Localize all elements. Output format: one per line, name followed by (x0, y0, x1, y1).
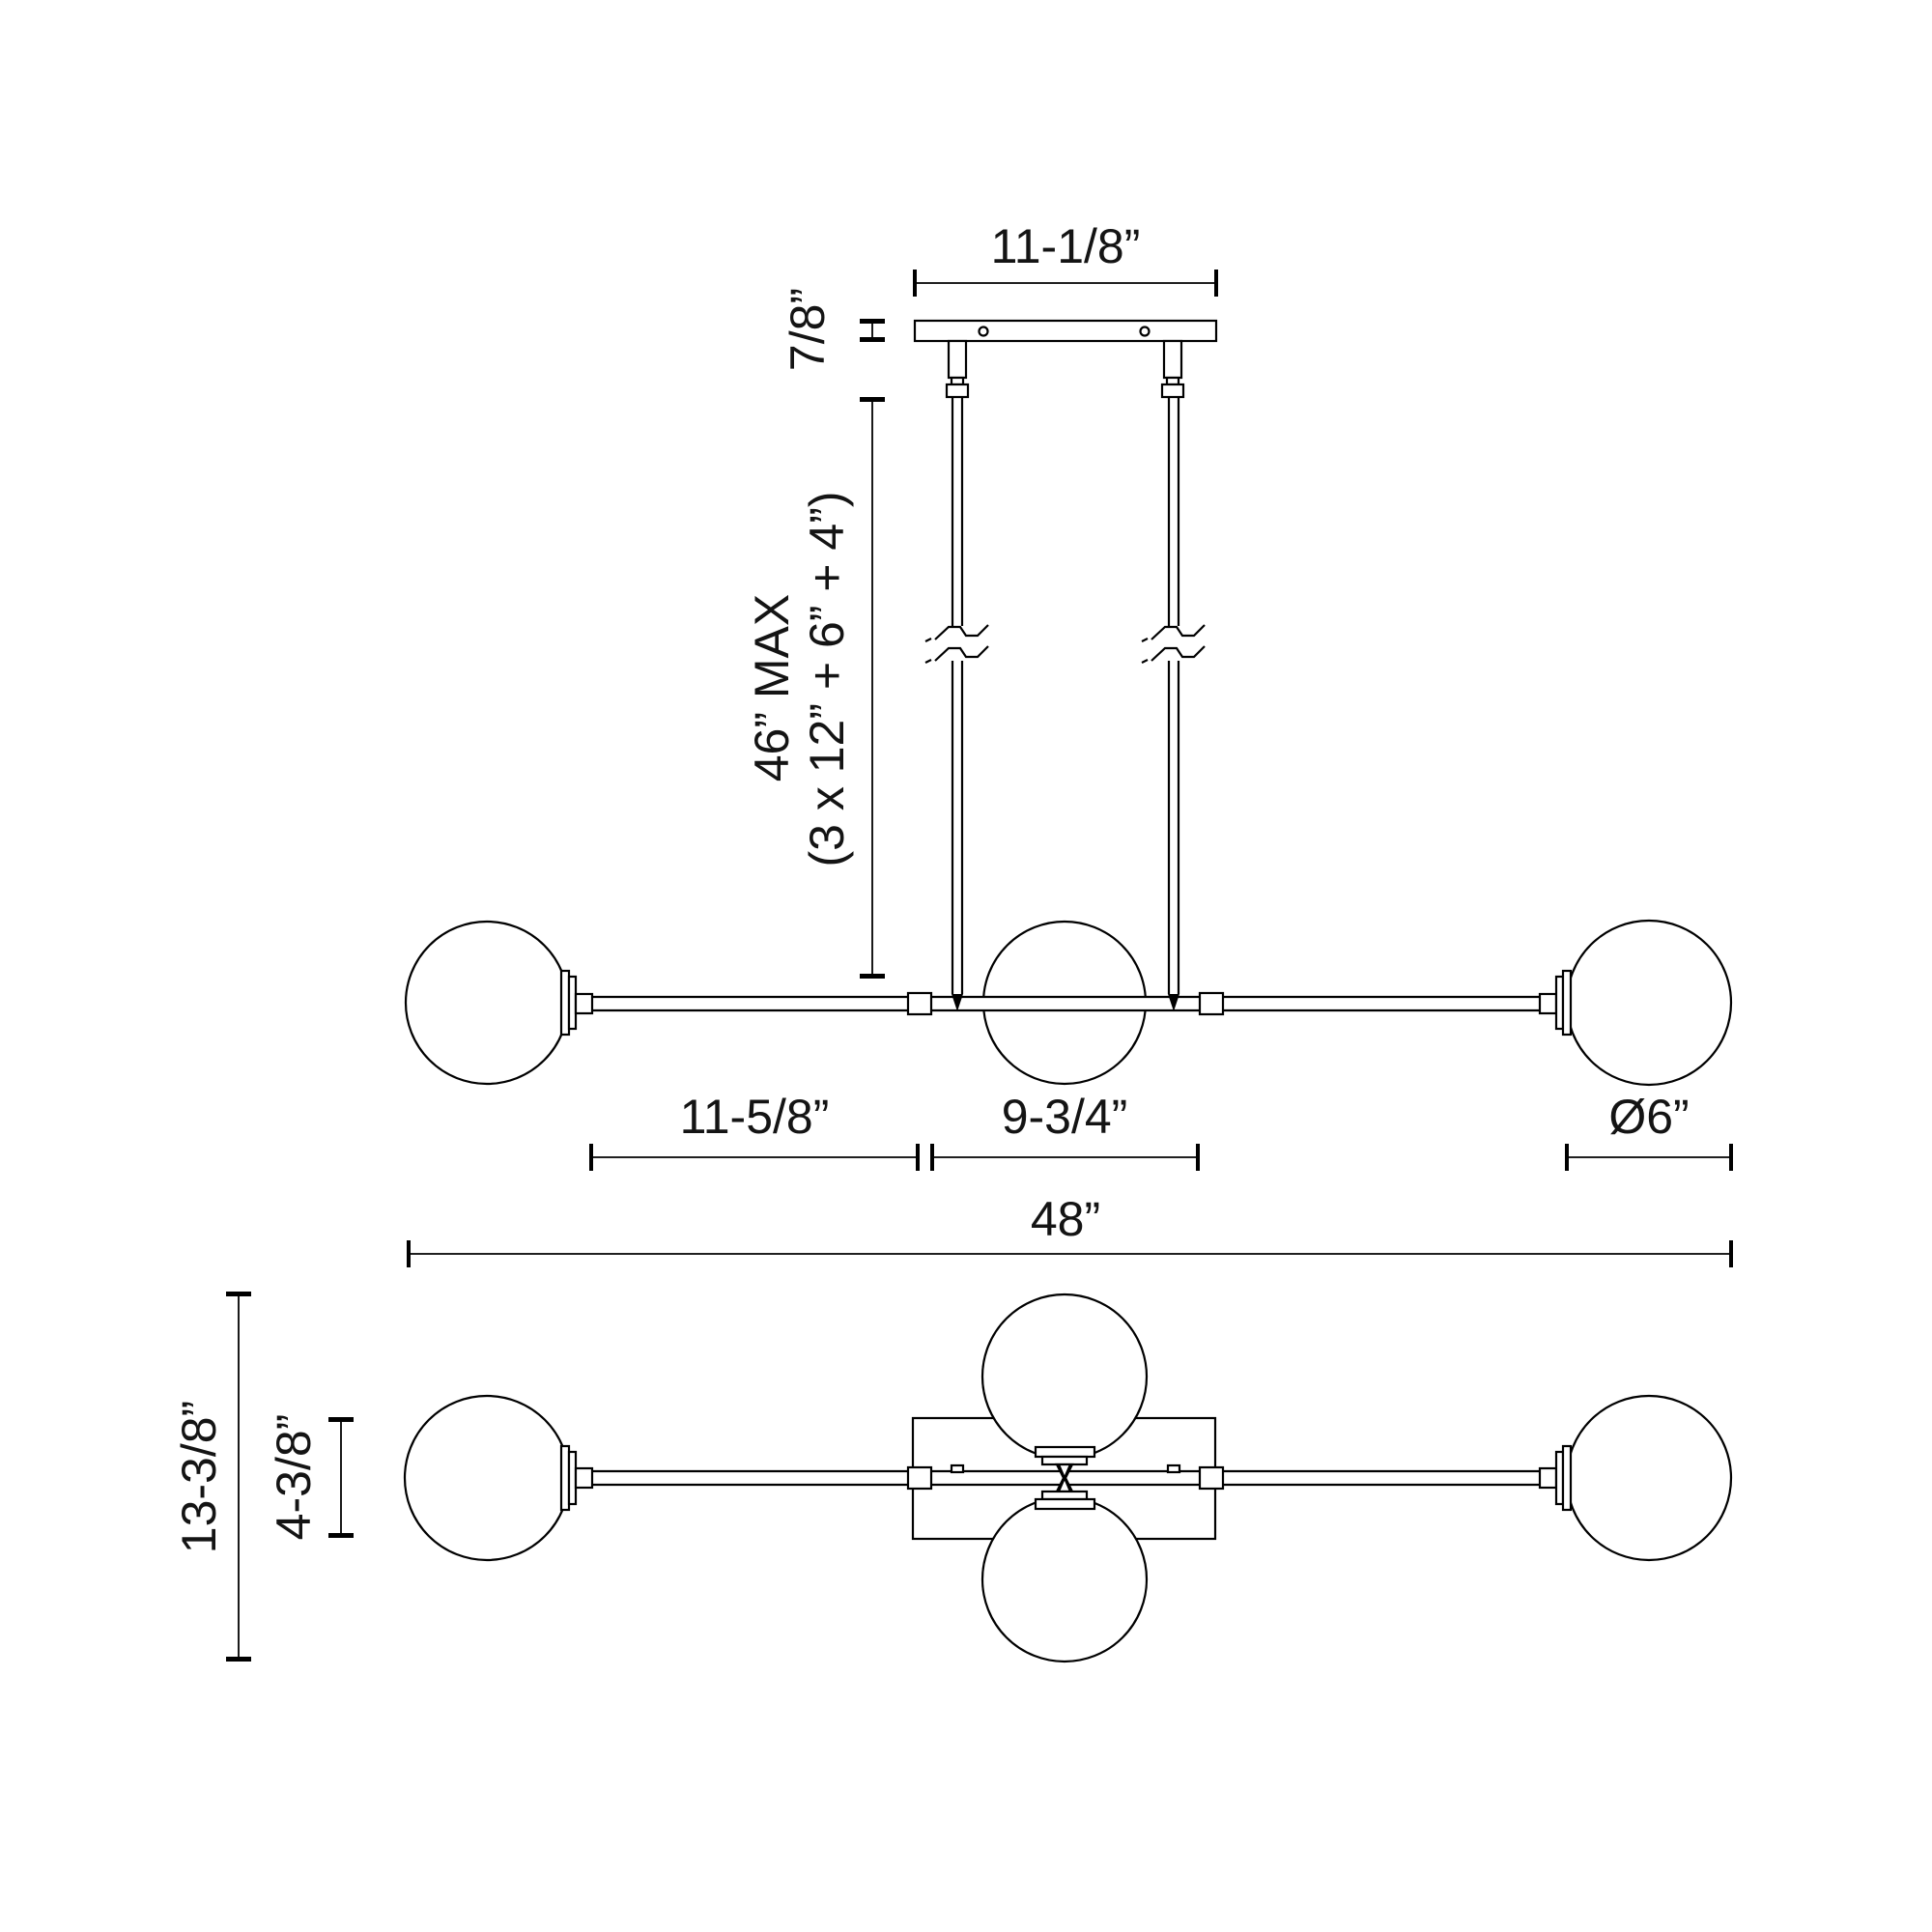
left-arm-length-label: 11-5/8” (680, 1090, 830, 1144)
center-section-label: 9-3/4” (1002, 1090, 1128, 1144)
canopy-height-label: 7/8” (781, 288, 835, 371)
right-bar-coupler (1200, 993, 1223, 1014)
right-arm-coupler-plan (1200, 1467, 1223, 1489)
dim-tick (328, 1417, 354, 1422)
back-globe-plan (982, 1497, 1147, 1662)
dim-tick (860, 974, 885, 979)
dim-tick (589, 1144, 593, 1171)
right-globe-side (1567, 921, 1731, 1085)
suspension-breakdown-label: (3 x 12” + 6” + 4”) (800, 491, 854, 867)
dim-overall-depth: 13-3/8” (172, 1292, 251, 1662)
dim-tick (226, 1657, 251, 1662)
dim-canopy-height: 7/8” (781, 288, 885, 371)
right-stem-nut (1162, 384, 1183, 397)
canopy-depth-label: 4-3/8” (267, 1414, 321, 1541)
dim-tick (930, 1144, 934, 1171)
back-fitter-ring-inner (1042, 1492, 1087, 1499)
dim-tick (916, 1144, 920, 1171)
dim-globe-diameter: Ø6” (1565, 1090, 1733, 1171)
left-globe-plan (405, 1396, 569, 1560)
canopy-plate (915, 321, 1216, 341)
canopy-width-label: 11-1/8” (991, 219, 1141, 273)
right-globe-plan (1567, 1396, 1731, 1560)
dim-tick (328, 1533, 354, 1538)
dim-tick (860, 397, 885, 402)
left-globe-side (406, 922, 568, 1084)
right-rod-break-mark-top (1142, 625, 1205, 641)
technical-drawing: 11-1/8” 7/8” 46” MAX (3 x 12” + 6” + 4”)… (0, 0, 1932, 1932)
left-arm-coupler-plan (908, 1467, 931, 1489)
left-fitter-ring-outer (561, 971, 569, 1035)
left-rod-break-mark-bottom (925, 646, 988, 663)
dim-tick (407, 1240, 411, 1267)
dim-left-arm: 11-5/8” (589, 1090, 920, 1171)
left-bar-end-cap (576, 994, 592, 1013)
dim-tick (226, 1292, 251, 1296)
dim-tick (913, 270, 917, 297)
globe-diameter-label: Ø6” (1608, 1090, 1689, 1144)
back-fitter-ring-outer (1036, 1499, 1094, 1509)
right-fitter-ring-outer-plan (1563, 1446, 1571, 1510)
dim-tick (1214, 270, 1218, 297)
left-bar-coupler (908, 993, 931, 1014)
right-bar-end-cap (1540, 994, 1556, 1013)
dim-tick (1565, 1144, 1569, 1171)
dim-center-section: 9-3/4” (930, 1090, 1200, 1171)
overall-depth-label: 13-3/8” (172, 1401, 226, 1553)
front-fitter-ring-inner (1042, 1457, 1087, 1464)
dim-tick (1196, 1144, 1200, 1171)
left-hang-stem (949, 341, 966, 378)
dim-overall-length: 48” (407, 1192, 1733, 1267)
dim-tick (860, 337, 885, 342)
dim-tick (1729, 1240, 1733, 1267)
left-rod-break-mark-top (925, 625, 988, 641)
plan-view (405, 1294, 1731, 1662)
overall-length-label: 48” (1031, 1192, 1100, 1246)
right-rod-break-mark-bottom (1142, 646, 1205, 663)
left-stem-nut (947, 384, 968, 397)
dim-suspension-height: 46” MAX (3 x 12” + 6” + 4”) (745, 397, 885, 979)
dim-tick (1729, 1144, 1733, 1171)
dim-canopy-depth: 4-3/8” (267, 1414, 354, 1541)
left-fitter-ring-outer-plan (561, 1446, 569, 1510)
suspension-max-label: 46” MAX (745, 594, 799, 782)
front-globe-plan (982, 1294, 1147, 1459)
right-rod-stub-plan (1168, 1465, 1179, 1472)
left-arm-end-cap-plan (576, 1468, 592, 1488)
bar-body (592, 998, 1540, 1009)
dim-tick (860, 319, 885, 324)
right-fitter-ring-outer (1563, 971, 1571, 1035)
front-fitter-ring-outer (1036, 1447, 1094, 1457)
canopy-side (915, 321, 1216, 397)
right-hang-stem (1164, 341, 1181, 378)
left-rod-stub-plan (952, 1465, 963, 1472)
side-view (406, 321, 1731, 1085)
right-arm-end-cap-plan (1540, 1468, 1556, 1488)
dim-canopy-width: 11-1/8” (913, 219, 1218, 297)
suspension-rods (925, 397, 1205, 1011)
drawing-canvas: 11-1/8” 7/8” 46” MAX (3 x 12” + 6” + 4”)… (0, 0, 1932, 1932)
